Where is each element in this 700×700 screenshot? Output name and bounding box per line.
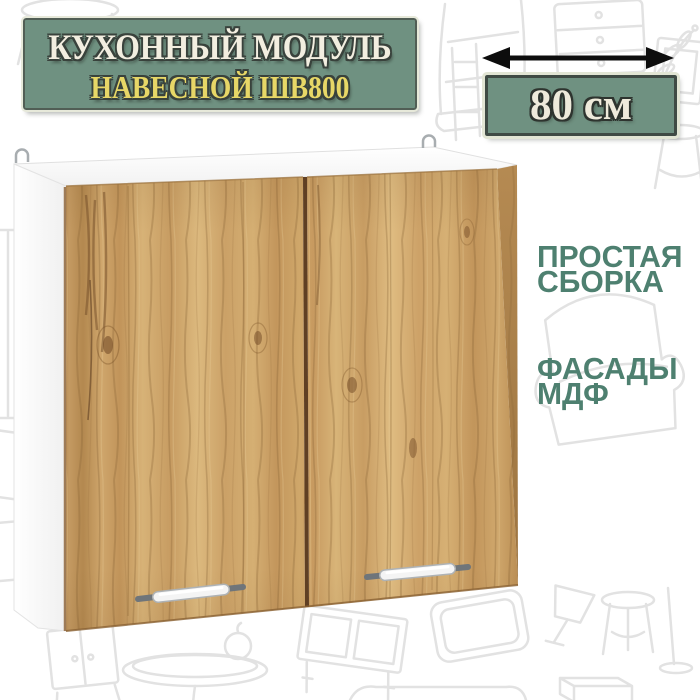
cabinet-left-door	[60, 160, 320, 640]
doodle-desk-lamp	[542, 586, 594, 650]
product-title: КУХОННЫЙ МОДУЛЬ	[48, 25, 391, 69]
cabinet-side-panel	[14, 164, 66, 631]
product-card: КУХОННЫЙ МОДУЛЬ НАВЕСНОЙ ШВ800 80 см ПРО…	[0, 0, 700, 700]
feature-line: СБОРКА	[537, 270, 682, 295]
doodle-stool-bottom-right	[602, 592, 654, 654]
doodle-sofa-bottom	[350, 687, 526, 700]
doodle-floor-lamp	[660, 588, 692, 673]
mounting-hook-right	[423, 135, 435, 148]
doodle-storage-box	[560, 678, 632, 700]
doodle-dresser-top-right	[554, 0, 646, 76]
dimension-badge: 80 см	[485, 75, 677, 136]
product-image-cabinet	[14, 135, 525, 640]
doodle-ladder-shelf	[452, 44, 480, 140]
dimension-value: 80 см	[488, 78, 674, 133]
doodle-mirror-frame	[429, 588, 530, 663]
feature-simple-assembly: ПРОСТАЯ СБОРКА	[537, 245, 682, 294]
doodle-round-table	[123, 623, 267, 700]
title-banner: КУХОННЫЙ МОДУЛЬ НАВЕСНОЙ ШВ800	[23, 18, 417, 110]
mounting-hook-left	[16, 149, 28, 163]
product-subtitle: НАВЕСНОЙ ШВ800	[52, 69, 387, 105]
doodle-cupboard-bottom-left	[47, 625, 123, 700]
feature-mdf-facades: ФАСАДЫ МДФ	[537, 357, 678, 406]
